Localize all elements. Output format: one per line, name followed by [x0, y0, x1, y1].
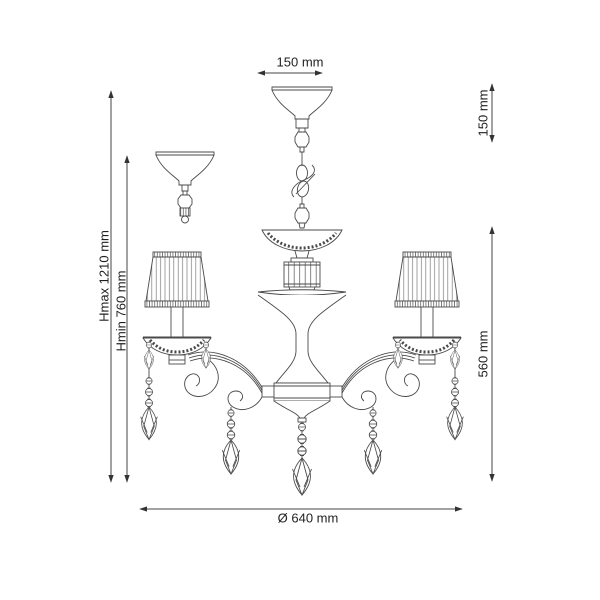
dim-label-diameter: Ø 640 mm — [278, 512, 339, 525]
technical-drawing: 150 mm 150 mm Hmax 1210 mm Hmin 760 mm 5… — [0, 0, 600, 600]
canopy-detail — [156, 152, 214, 223]
dim-label-canopy-width: 150 mm — [277, 56, 324, 69]
center-pendant — [293, 422, 312, 495]
dim-label-max-height: Hmax 1210 mm — [98, 230, 111, 322]
ceiling-canopy — [272, 87, 332, 128]
left-lamp — [141, 252, 211, 440]
center-hub — [262, 383, 342, 422]
left-arm — [185, 352, 263, 474]
dim-label-body-height: 560 mm — [477, 331, 490, 378]
right-lamp — [393, 252, 463, 440]
dim-label-canopy-height: 150 mm — [477, 90, 490, 137]
suspension-chain — [292, 128, 315, 228]
center-column — [258, 230, 346, 383]
right-arm — [341, 352, 419, 474]
dim-label-min-height: Hmin 760 mm — [115, 271, 128, 352]
